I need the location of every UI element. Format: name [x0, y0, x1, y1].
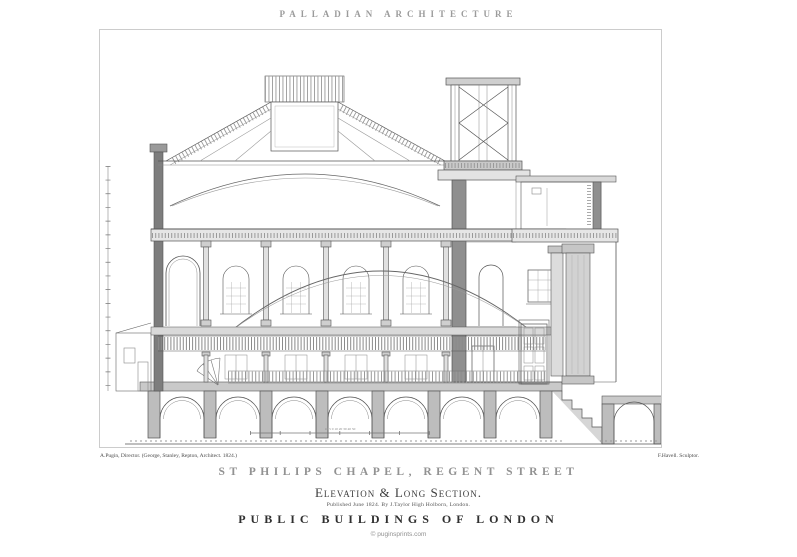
engraving-plate: 10 5 0 10 20 30 40 50: [99, 29, 662, 448]
scale-bar: 10 5 0 10 20 30 40 50: [250, 427, 430, 433]
engraver-credit: F.Havell. Sculptor.: [658, 453, 699, 459]
architect-credit: A.Pugin, Director. (George, Stanley, Rep…: [100, 453, 237, 459]
plate-subtitle: Elevation & Long Section.: [0, 485, 797, 501]
page-title: PALLADIAN ARCHITECTURE: [0, 9, 797, 19]
credit-line: A.Pugin, Director. (George, Stanley, Rep…: [100, 453, 699, 459]
chapel-title: ST PHILIPS CHAPEL, REGENT STREET: [0, 466, 797, 478]
upper-colonnade: [151, 229, 566, 331]
crypt-arcade: [125, 382, 661, 444]
scale-numbers: 10 5 0 10 20 30 40 50: [325, 427, 356, 431]
copyright-notice: © puginsprints.com: [0, 531, 797, 538]
roof-trusses: [158, 76, 451, 206]
architectural-section-drawing: 10 5 0 10 20 30 40 50: [100, 30, 661, 447]
gallery-and-lower-storey: [151, 327, 551, 383]
publisher-imprint: Published June 1824. By J.Taylor High Ho…: [0, 502, 797, 508]
poster-page: PALLADIAN ARCHITECTURE: [0, 0, 797, 557]
right-wing-elevation: [512, 176, 618, 384]
series-title: PUBLIC BUILDINGS OF LONDON: [0, 512, 797, 527]
